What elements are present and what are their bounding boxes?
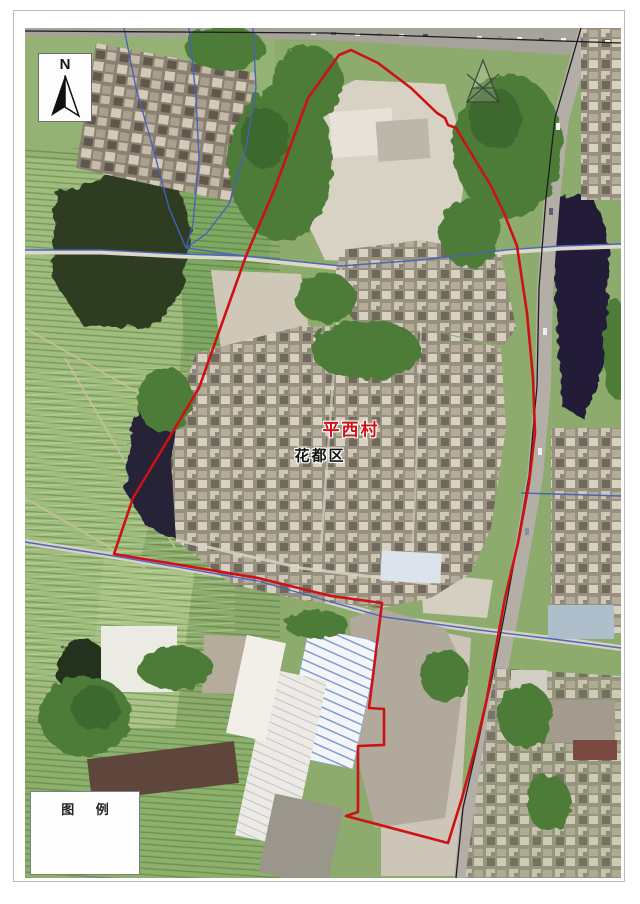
- north-arrow-icon: [0, 73, 363, 121]
- map-page: N 平西村 花都区 图 例 工作范围 区级行政区: [0, 0, 640, 904]
- north-label: N: [60, 57, 71, 73]
- legend: 图 例 工作范围 区级行政区: [30, 791, 140, 875]
- north-compass: N: [38, 53, 92, 122]
- district-label: 花都区: [294, 445, 345, 466]
- satellite-map: N 平西村 花都区 图 例 工作范围 区级行政区: [25, 28, 621, 878]
- village-label: 平西村: [323, 416, 380, 441]
- legend-item-work-scope: 工作范围: [40, 823, 139, 904]
- legend-work-swatch: [40, 823, 636, 904]
- legend-title: 图 例: [31, 799, 139, 818]
